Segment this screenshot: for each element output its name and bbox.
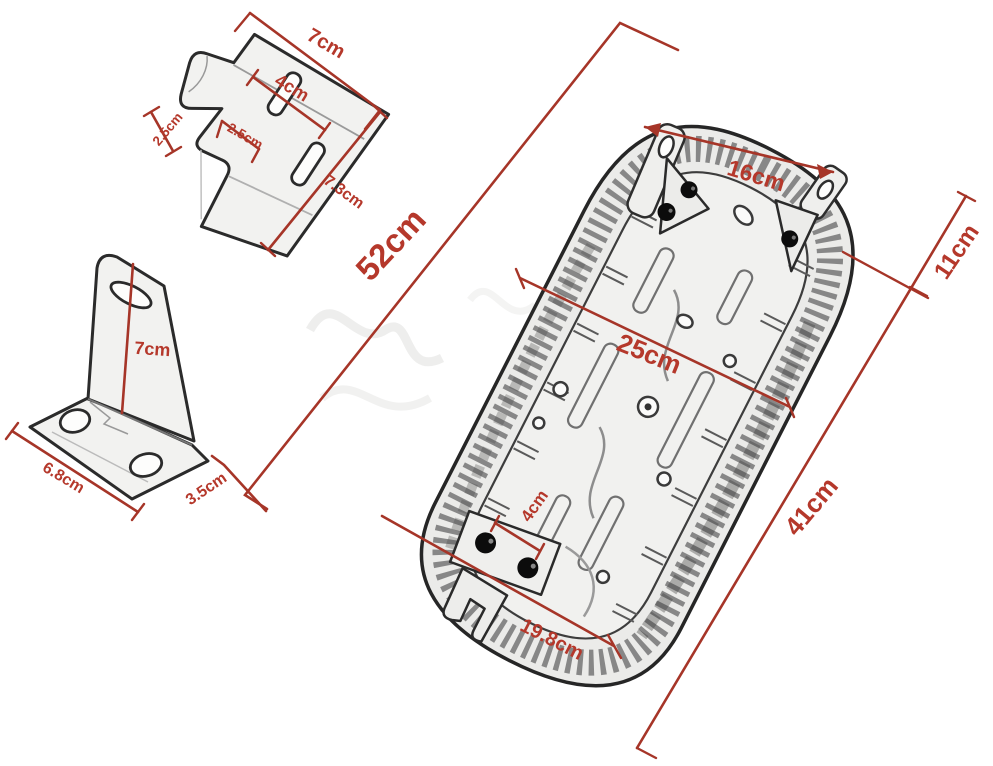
dim-label-angle-upright-height: 7cm bbox=[134, 338, 171, 360]
angle-bracket-sketch bbox=[30, 255, 208, 499]
product-dimension-diagram: 7cm 4cm 2.5cm 2.5cm 7.3cm 7cm 6.8cm 3.5c… bbox=[0, 0, 993, 766]
dim-label-front-section: 11cm bbox=[929, 219, 985, 284]
dim-label-rear-section: 41cm bbox=[778, 471, 844, 541]
dim-label-angle-base-width: 3.5cm bbox=[183, 470, 230, 509]
